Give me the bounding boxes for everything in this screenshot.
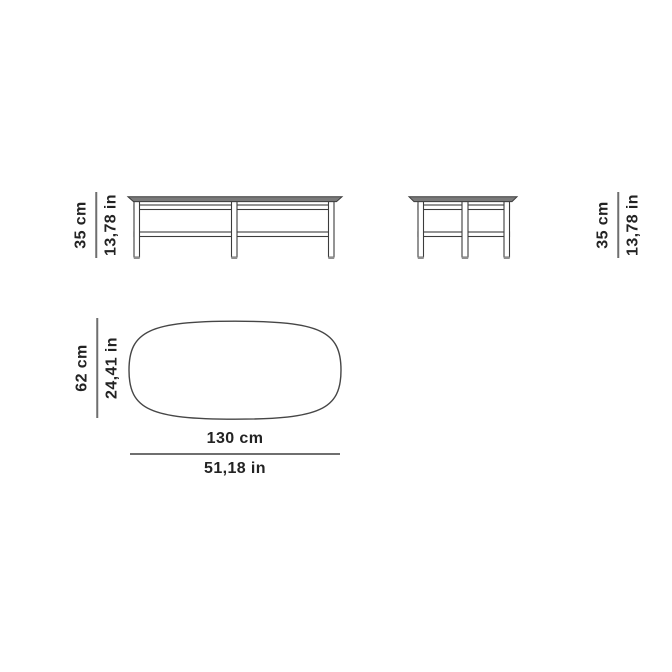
depth-inches-label: 24,41 in [103,337,121,399]
table-foot [462,257,468,259]
table-leg-right [504,202,510,258]
dimension-line [96,318,98,418]
side-view-drawing [409,196,517,260]
technical-drawing-canvas: 35 cm 13,78 in 35 cm 13,78 in 62 cm 24,4… [0,0,672,672]
height-cm-label: 35 cm [72,201,90,248]
depth-dimension: 62 cm 24,41 in [73,318,121,418]
width-cm-label: 130 cm [207,430,264,448]
table-leg-middle [232,202,238,258]
width-dimension: 130 cm 51,18 in [130,430,340,478]
table-foot [134,257,140,259]
table-foot [504,257,510,259]
height-inches-label: 13,78 in [624,194,642,256]
tabletop-outline [129,321,341,419]
depth-cm-label: 62 cm [73,344,91,391]
height-inches-label: 13,78 in [102,194,120,256]
tabletop-side [409,197,517,202]
table-leg-middle [462,202,468,258]
table-leg-left [134,202,140,258]
front-view-drawing [128,196,342,260]
dimension-line [130,453,340,455]
table-leg-right [329,202,335,258]
table-leg-left [418,202,424,258]
height-dimension-front: 35 cm 13,78 in [72,192,120,258]
height-cm-label: 35 cm [594,201,612,248]
dimension-line [617,192,619,258]
top-view-drawing [128,320,342,421]
table-foot [328,257,334,259]
height-dimension-side: 35 cm 13,78 in [594,192,642,258]
width-inches-label: 51,18 in [204,460,266,478]
tabletop-front [128,197,342,202]
table-foot [418,257,424,259]
table-foot [231,257,237,259]
dimension-line [95,192,97,258]
